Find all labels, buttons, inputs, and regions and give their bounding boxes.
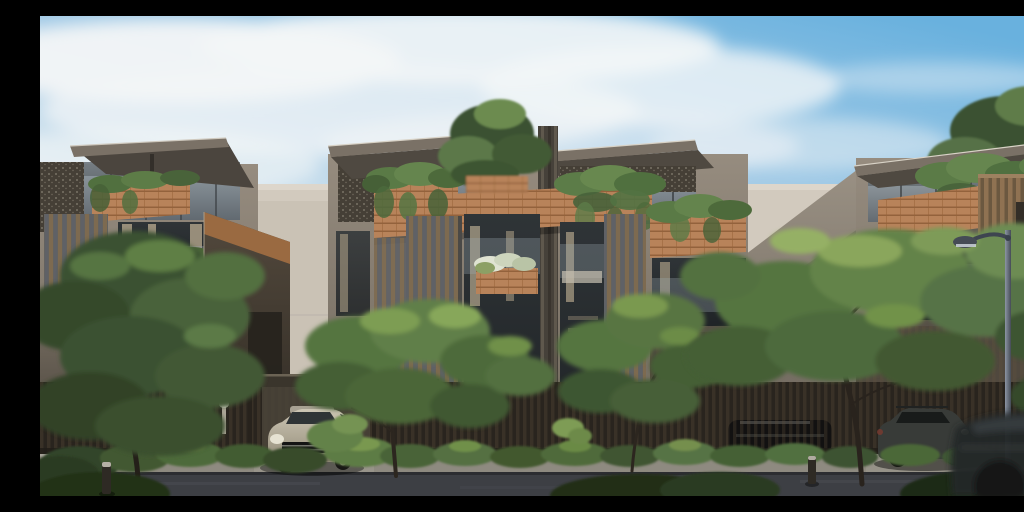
headlight: [270, 434, 284, 444]
architectural-rendering: [40, 16, 1024, 496]
